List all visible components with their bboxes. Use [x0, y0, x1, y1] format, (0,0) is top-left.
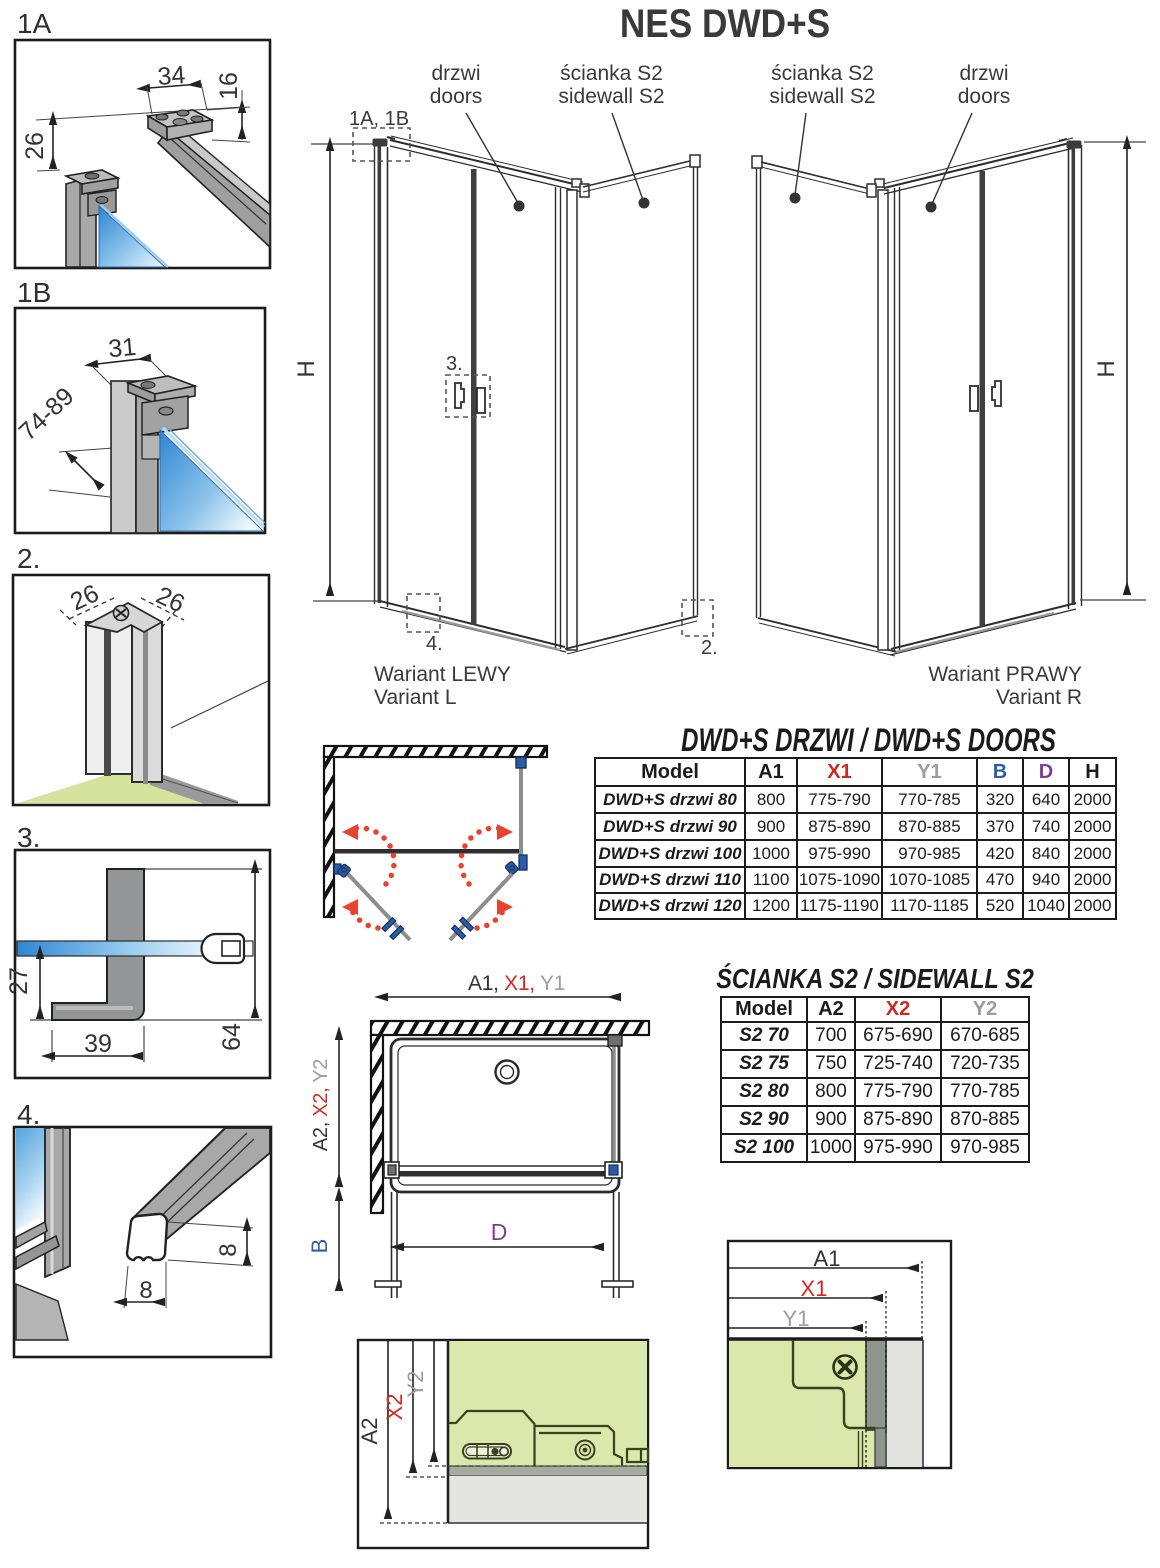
svg-text:B: B	[307, 1239, 332, 1254]
svg-text:31: 31	[107, 333, 137, 363]
svg-text:A2, X2, Y2: A2, X2, Y2	[310, 1059, 332, 1151]
svg-text:39: 39	[84, 1030, 112, 1058]
svg-text:8: 8	[215, 1243, 242, 1256]
svg-text:H: H	[1093, 360, 1120, 377]
svg-text:A2: A2	[357, 1418, 382, 1445]
svg-text:D: D	[491, 1219, 508, 1245]
svg-text:26: 26	[66, 579, 103, 616]
svg-text:26: 26	[152, 581, 189, 618]
svg-text:64: 64	[218, 1023, 246, 1051]
svg-text:16: 16	[215, 72, 243, 100]
svg-text:26: 26	[21, 132, 49, 160]
svg-text:74-89: 74-89	[14, 382, 80, 446]
svg-text:Y2: Y2	[403, 1371, 428, 1398]
svg-text:8: 8	[139, 1277, 152, 1304]
svg-text:A1, X1, Y1: A1, X1, Y1	[468, 972, 565, 995]
svg-text:27: 27	[5, 967, 33, 995]
svg-text:H: H	[293, 360, 320, 377]
